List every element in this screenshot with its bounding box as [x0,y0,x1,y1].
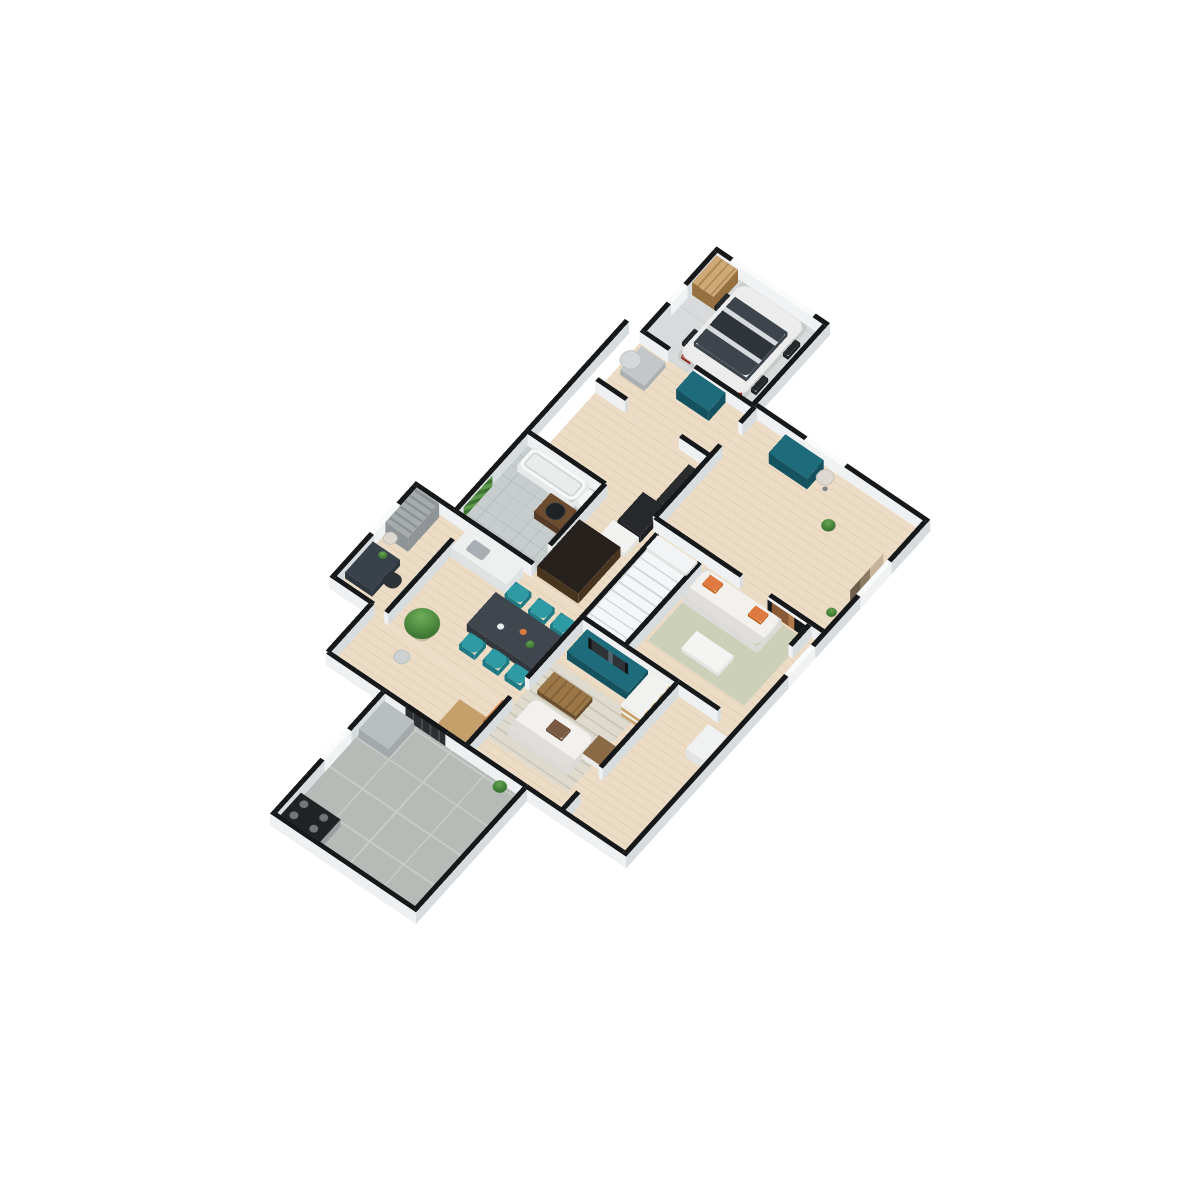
patio-bottom-wall-face [416,909,419,924]
garage-top-wall-face [827,323,830,338]
floorplan-canvas [0,0,1200,1200]
